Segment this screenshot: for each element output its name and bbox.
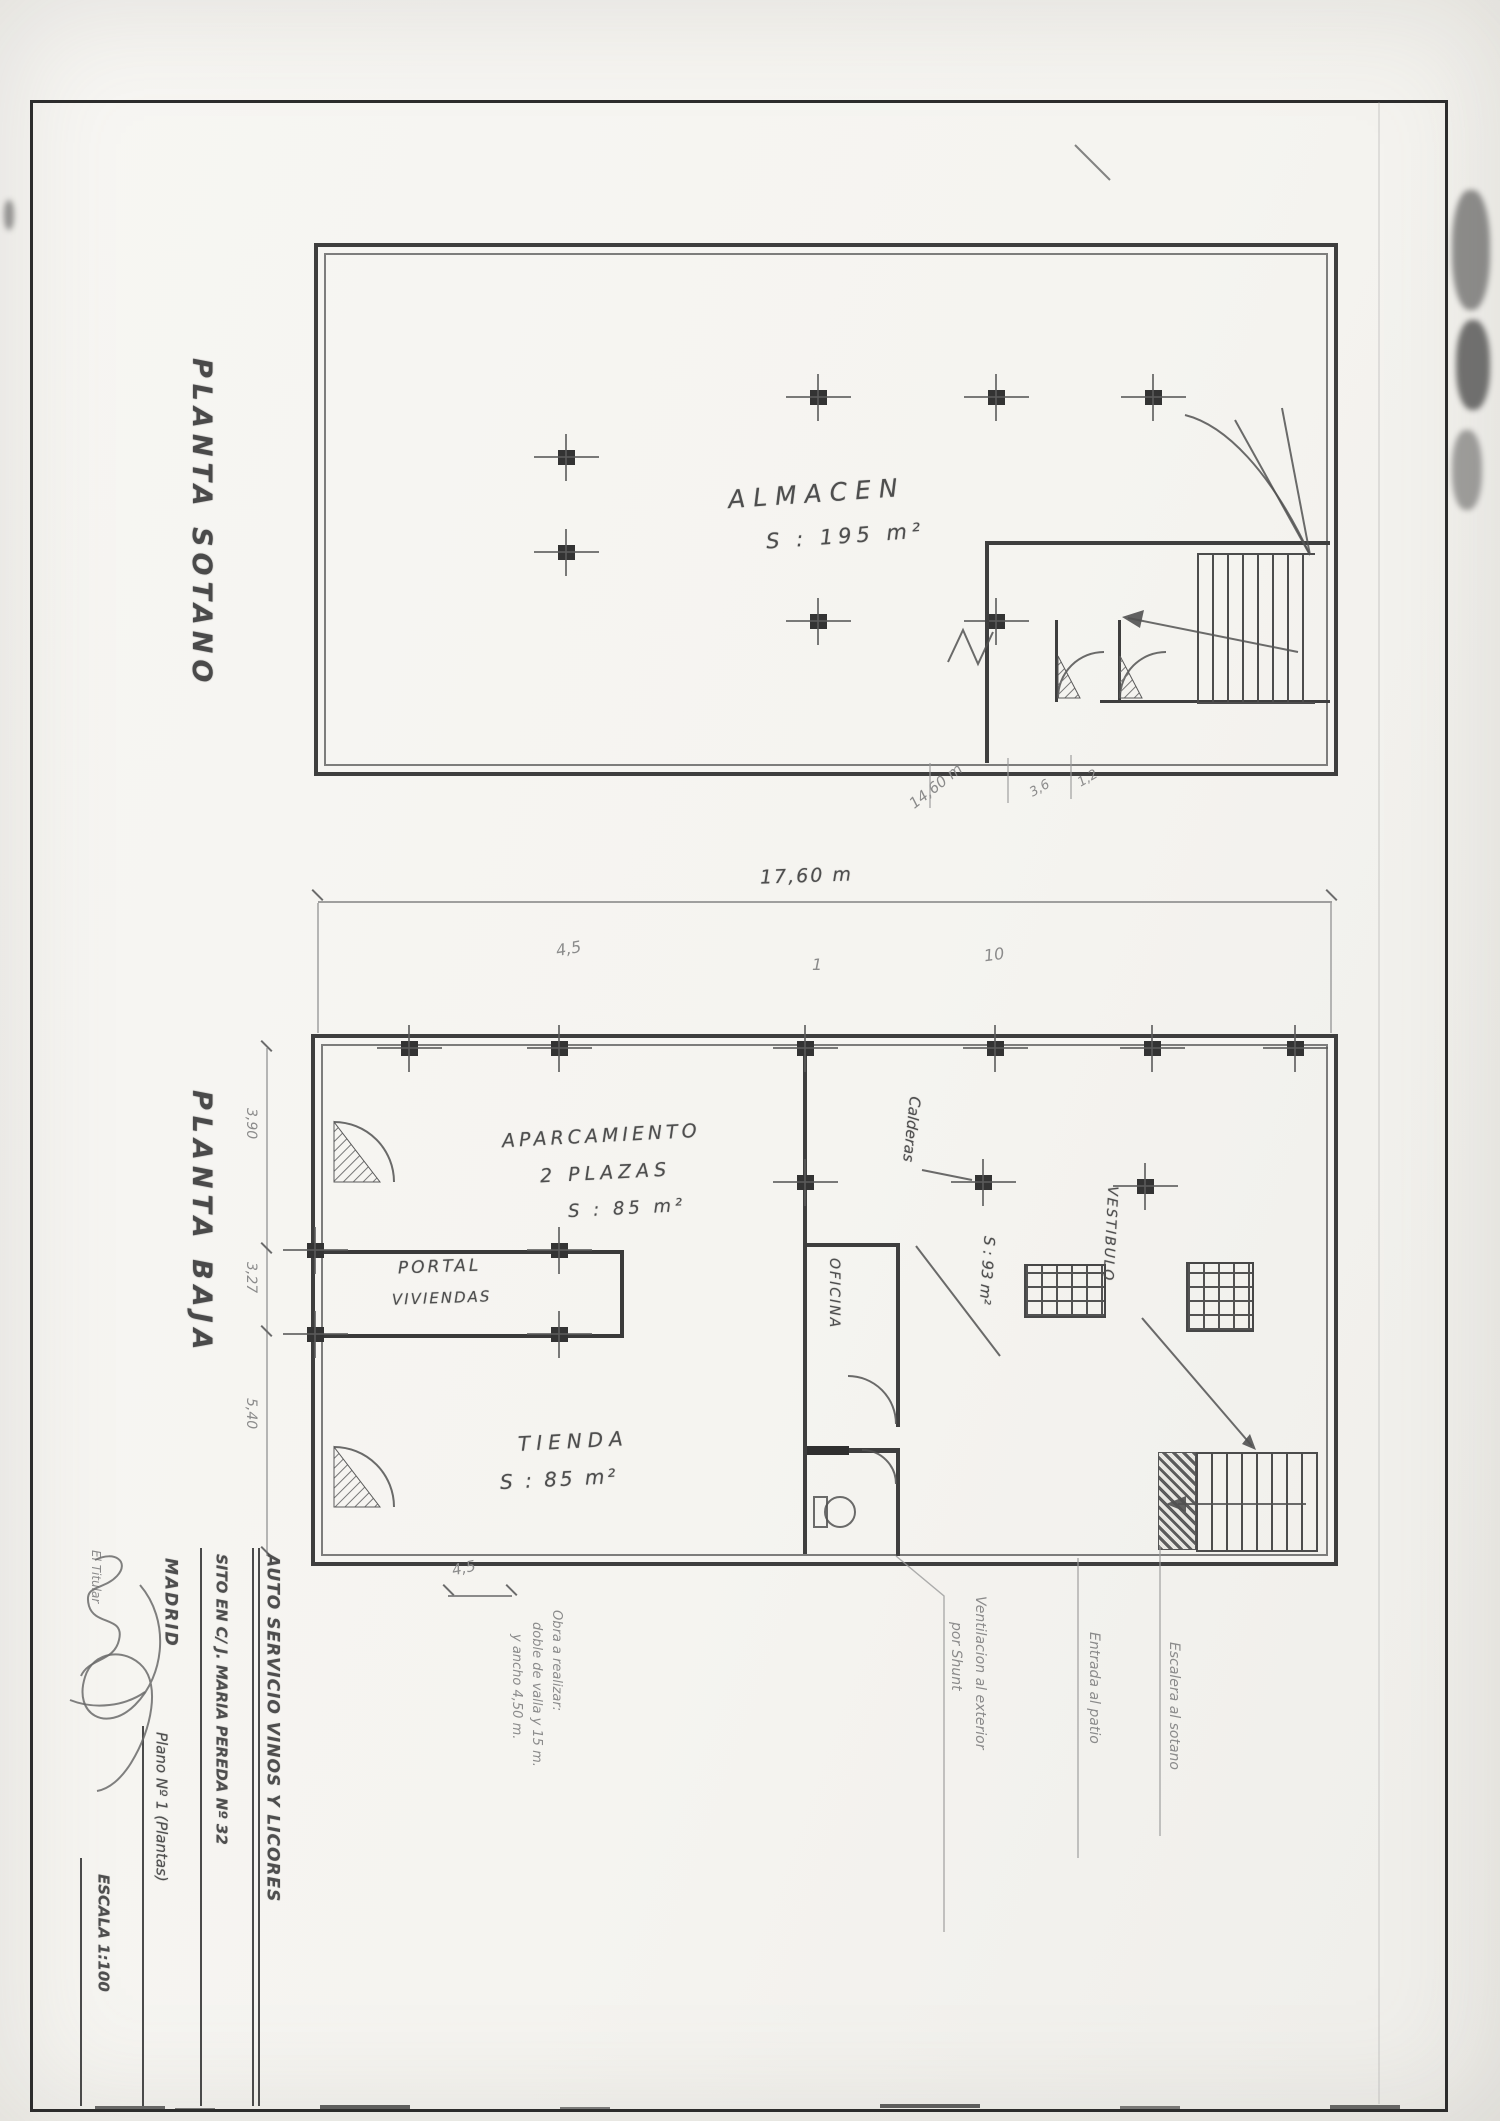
bottom-edge-mark — [560, 2107, 610, 2110]
bottom-edge-mark — [880, 2104, 980, 2108]
scan-smudge — [4, 200, 14, 230]
sotano-stair-arrow — [1122, 610, 1298, 652]
oficina-door-swing — [848, 1376, 896, 1424]
note-leader-lines — [896, 1546, 1160, 1932]
scan-smudge — [1452, 430, 1482, 510]
bottom-edge-mark — [320, 2105, 410, 2109]
baja-tienda-door-swing — [334, 1447, 394, 1507]
scan-smudge — [1456, 320, 1490, 410]
calderas-leader-lines — [916, 1170, 1000, 1356]
scanned-blueprint-sheet: PLANTA SOTANO ALMACEN S : 195 m² 14,60 m… — [0, 0, 1500, 2121]
bottom-edge-mark — [1120, 2106, 1180, 2109]
baja-garage-door-swing — [334, 1122, 394, 1182]
scan-diagonal-artifact — [1075, 145, 1110, 180]
sotano-door-swings — [1058, 652, 1166, 698]
signature-scribble — [70, 1556, 160, 1791]
baja-stair-arrow — [1166, 1496, 1306, 1512]
sotano-extension-ticks — [930, 755, 1071, 808]
bottom-edge-mark — [95, 2106, 165, 2110]
stair-leader-diagonal — [1142, 1318, 1256, 1450]
scan-smudge — [1452, 190, 1490, 310]
sotano-ramp-lines — [1185, 408, 1310, 555]
drawing-lines-layer — [0, 0, 1500, 2121]
bathroom-fixtures — [814, 1450, 896, 1527]
bottom-edge-mark — [175, 2108, 215, 2111]
bottom-edge-mark — [1330, 2105, 1400, 2109]
sotano-zigzag-mark — [948, 630, 993, 664]
